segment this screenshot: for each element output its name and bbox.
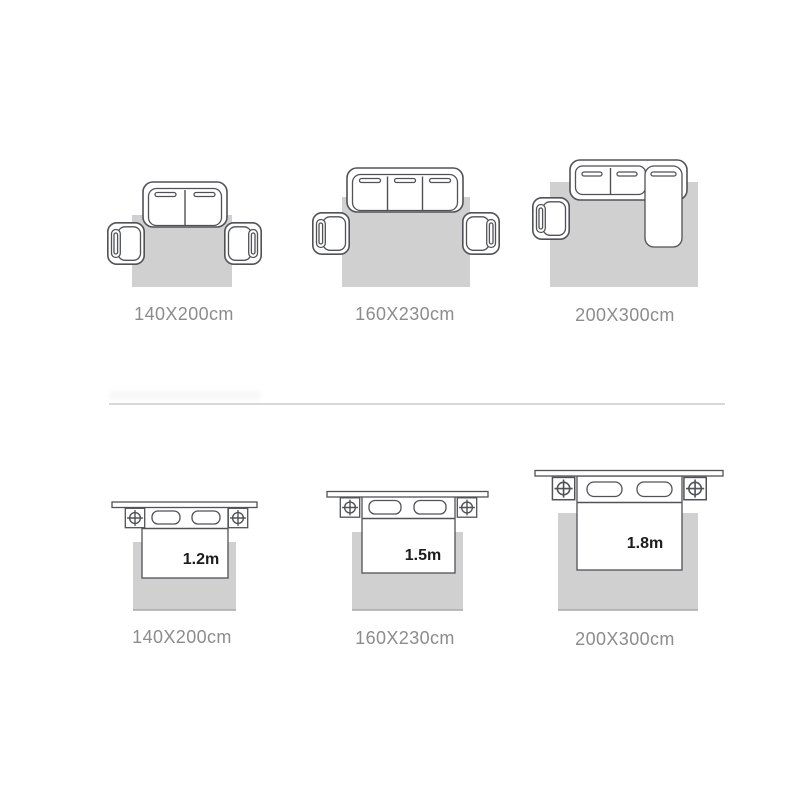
- bed-rug-size-label: 160X230cm: [325, 628, 485, 650]
- headboard-icon: [535, 471, 723, 477]
- faint-watermark: [110, 391, 260, 400]
- rug-size-guide-canvas: [0, 0, 800, 800]
- armchair-left-icon: [313, 213, 349, 254]
- sofa-rug-size-label: 200X300cm: [545, 305, 705, 327]
- rug-size-guide: 1.2m 1.5m 1.8m 140X200cm 160X230cm 200X3…: [0, 0, 800, 800]
- armchair-right-icon: [463, 213, 499, 254]
- nightstand-right-icon: [457, 498, 476, 517]
- sofa-scene-200x300: [533, 160, 698, 287]
- bed-width-label: 1.5m: [393, 547, 453, 567]
- nightstand-left-icon: [552, 477, 574, 499]
- three-seat-sofa-icon: [347, 168, 463, 212]
- armchair-left-icon: [108, 223, 144, 264]
- sofa-rug-size-label: 160X230cm: [325, 304, 485, 326]
- sofa-scene-160x230: [313, 168, 499, 287]
- nightstand-right-icon: [684, 477, 706, 499]
- armchair-right-icon: [225, 223, 261, 264]
- sofa-scene-140x200: [108, 182, 261, 287]
- bed-rug-size-label: 200X300cm: [545, 629, 705, 651]
- headboard-icon: [327, 492, 488, 498]
- bed-rug-size-label: 140X200cm: [102, 627, 262, 649]
- armchair-left-icon: [533, 198, 569, 239]
- bed-width-label: 1.8m: [615, 535, 675, 555]
- nightstand-right-icon: [228, 508, 247, 527]
- two-seat-sofa-icon: [143, 182, 227, 227]
- nightstand-left-icon: [340, 498, 359, 517]
- section-divider: [109, 403, 725, 405]
- bed-width-label: 1.2m: [171, 551, 231, 571]
- sofa-rug-size-label: 140X200cm: [104, 304, 264, 326]
- headboard-icon: [112, 502, 257, 508]
- nightstand-left-icon: [125, 508, 144, 527]
